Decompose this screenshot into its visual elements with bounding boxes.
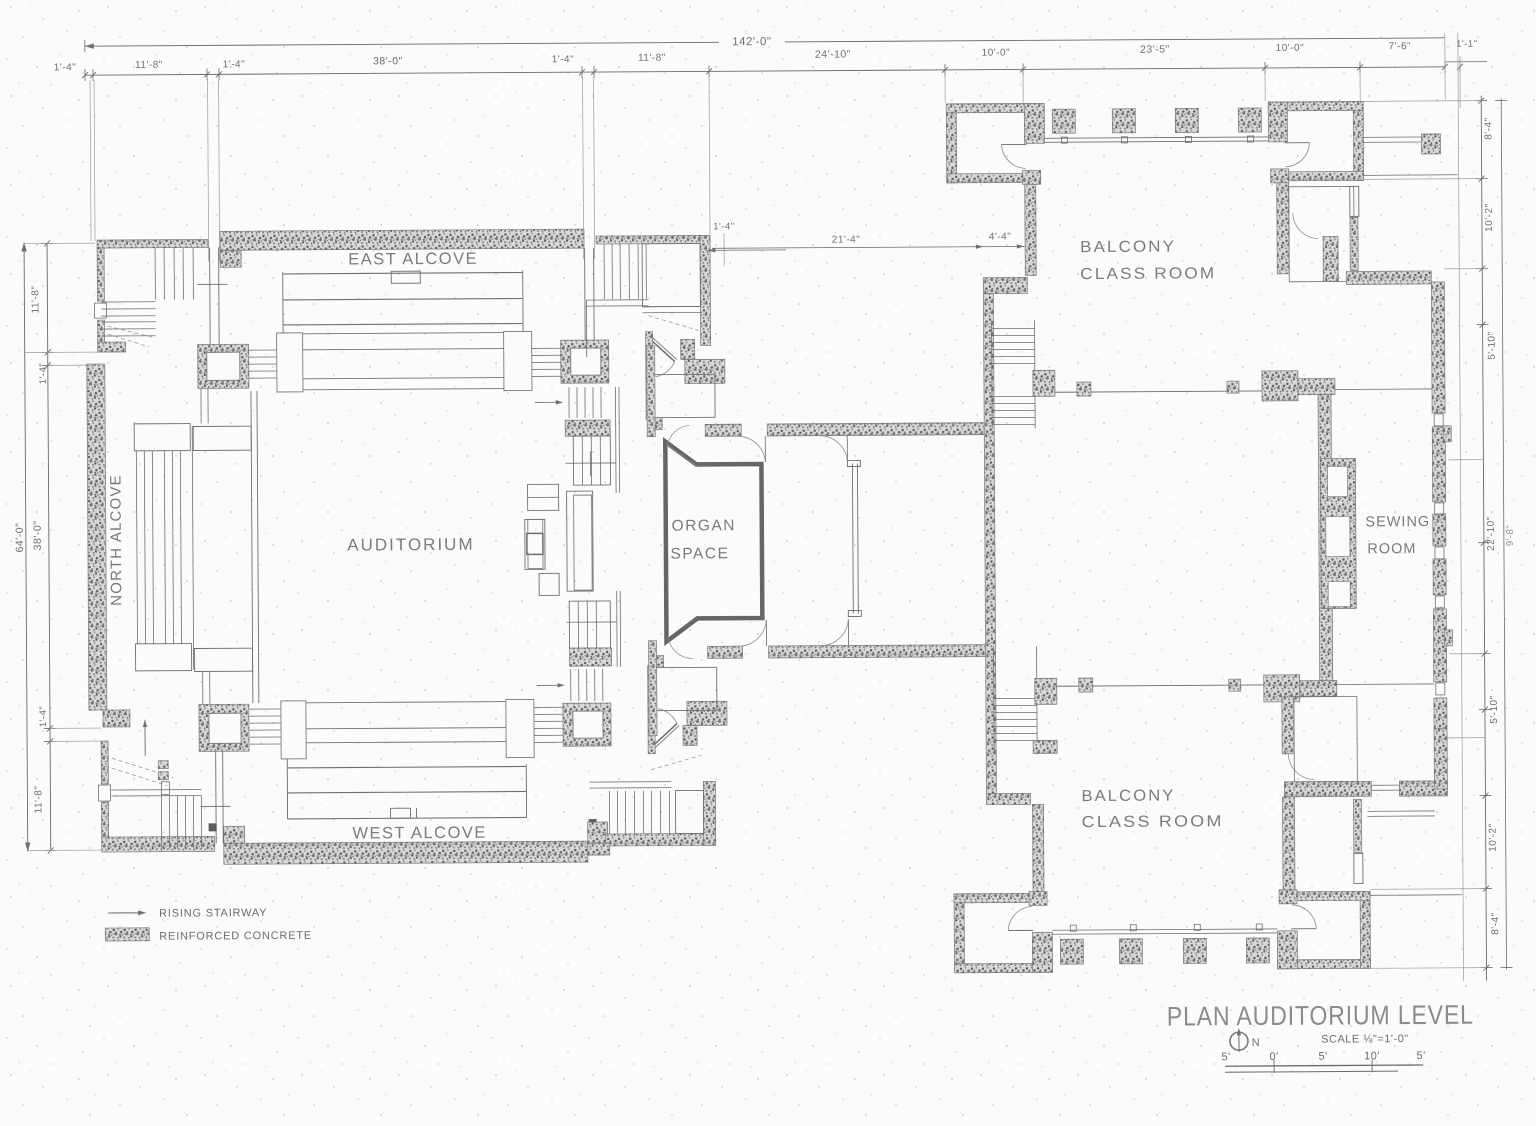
svg-text:1'-1": 1'-1" xyxy=(1456,39,1477,50)
svg-text:PLAN AUDITORIUM LEVEL: PLAN AUDITORIUM LEVEL xyxy=(1167,1000,1474,1032)
svg-text:CLASS ROOM: CLASS ROOM xyxy=(1082,813,1224,831)
svg-text:11'-8": 11'-8" xyxy=(33,786,44,814)
svg-text:SEWING: SEWING xyxy=(1365,514,1430,530)
svg-text:23'-5": 23'-5" xyxy=(1140,44,1170,56)
svg-text:11'-8": 11'-8" xyxy=(638,53,666,64)
svg-text:4'-4": 4'-4" xyxy=(989,232,1011,243)
svg-text:10'-0": 10'-0" xyxy=(1276,43,1305,54)
svg-text:10'-2": 10'-2" xyxy=(1488,823,1499,852)
svg-text:5': 5' xyxy=(1221,1051,1230,1063)
svg-text:1'-4": 1'-4" xyxy=(223,59,245,70)
svg-text:11'-8": 11'-8" xyxy=(135,60,163,71)
svg-text:WEST ALCOVE: WEST ALCOVE xyxy=(352,824,487,843)
svg-text:BALCONY: BALCONY xyxy=(1081,788,1175,806)
svg-text:10'-2": 10'-2" xyxy=(1484,203,1495,232)
svg-text:142'-0": 142'-0" xyxy=(732,36,771,48)
svg-text:5': 5' xyxy=(1318,1051,1327,1063)
svg-text:SCALE ⅛"=1'-0": SCALE ⅛"=1'-0" xyxy=(1321,1033,1409,1046)
svg-text:38'-0": 38'-0" xyxy=(32,521,44,551)
svg-text:1'-4": 1'-4" xyxy=(713,221,734,232)
svg-text:CLASS ROOM: CLASS ROOM xyxy=(1080,265,1216,283)
svg-text:EAST ALCOVE: EAST ALCOVE xyxy=(348,250,478,269)
svg-text:7'-6": 7'-6" xyxy=(1389,41,1411,52)
svg-text:1'-4": 1'-4" xyxy=(38,363,49,384)
svg-text:8'-4": 8'-4" xyxy=(1483,117,1494,139)
svg-text:RISING STAIRWAY: RISING STAIRWAY xyxy=(159,907,267,920)
svg-text:9'-8": 9'-8" xyxy=(1505,525,1516,546)
svg-text:11'-8": 11'-8" xyxy=(30,286,41,314)
svg-text:ROOM: ROOM xyxy=(1367,541,1416,557)
svg-text:10'-0": 10'-0" xyxy=(982,48,1011,59)
svg-text:24'-10": 24'-10" xyxy=(815,48,851,60)
svg-text:N: N xyxy=(1252,1037,1261,1049)
svg-text:AUDITORIUM: AUDITORIUM xyxy=(347,535,474,555)
svg-text:8'-4": 8'-4" xyxy=(1490,912,1501,934)
svg-text:5'-10": 5'-10" xyxy=(1489,695,1500,724)
svg-text:SPACE: SPACE xyxy=(670,545,729,562)
svg-text:5': 5' xyxy=(1416,1050,1425,1062)
svg-text:1'-4": 1'-4" xyxy=(552,54,574,65)
svg-text:22'-10": 22'-10" xyxy=(1486,516,1497,551)
svg-text:64'-0": 64'-0" xyxy=(14,523,26,553)
svg-text:1'-4": 1'-4" xyxy=(38,706,49,727)
svg-text:38'-0": 38'-0" xyxy=(373,55,403,67)
svg-text:5'-10": 5'-10" xyxy=(1487,331,1498,360)
svg-text:21'-4": 21'-4" xyxy=(832,234,861,245)
svg-text:BALCONY: BALCONY xyxy=(1080,239,1176,257)
svg-text:ORGAN: ORGAN xyxy=(672,517,736,534)
svg-text:REINFORCED CONCRETE: REINFORCED CONCRETE xyxy=(159,930,312,943)
svg-text:NORTH ALCOVE: NORTH ALCOVE xyxy=(107,474,125,606)
svg-text:1'-4": 1'-4" xyxy=(54,62,76,73)
